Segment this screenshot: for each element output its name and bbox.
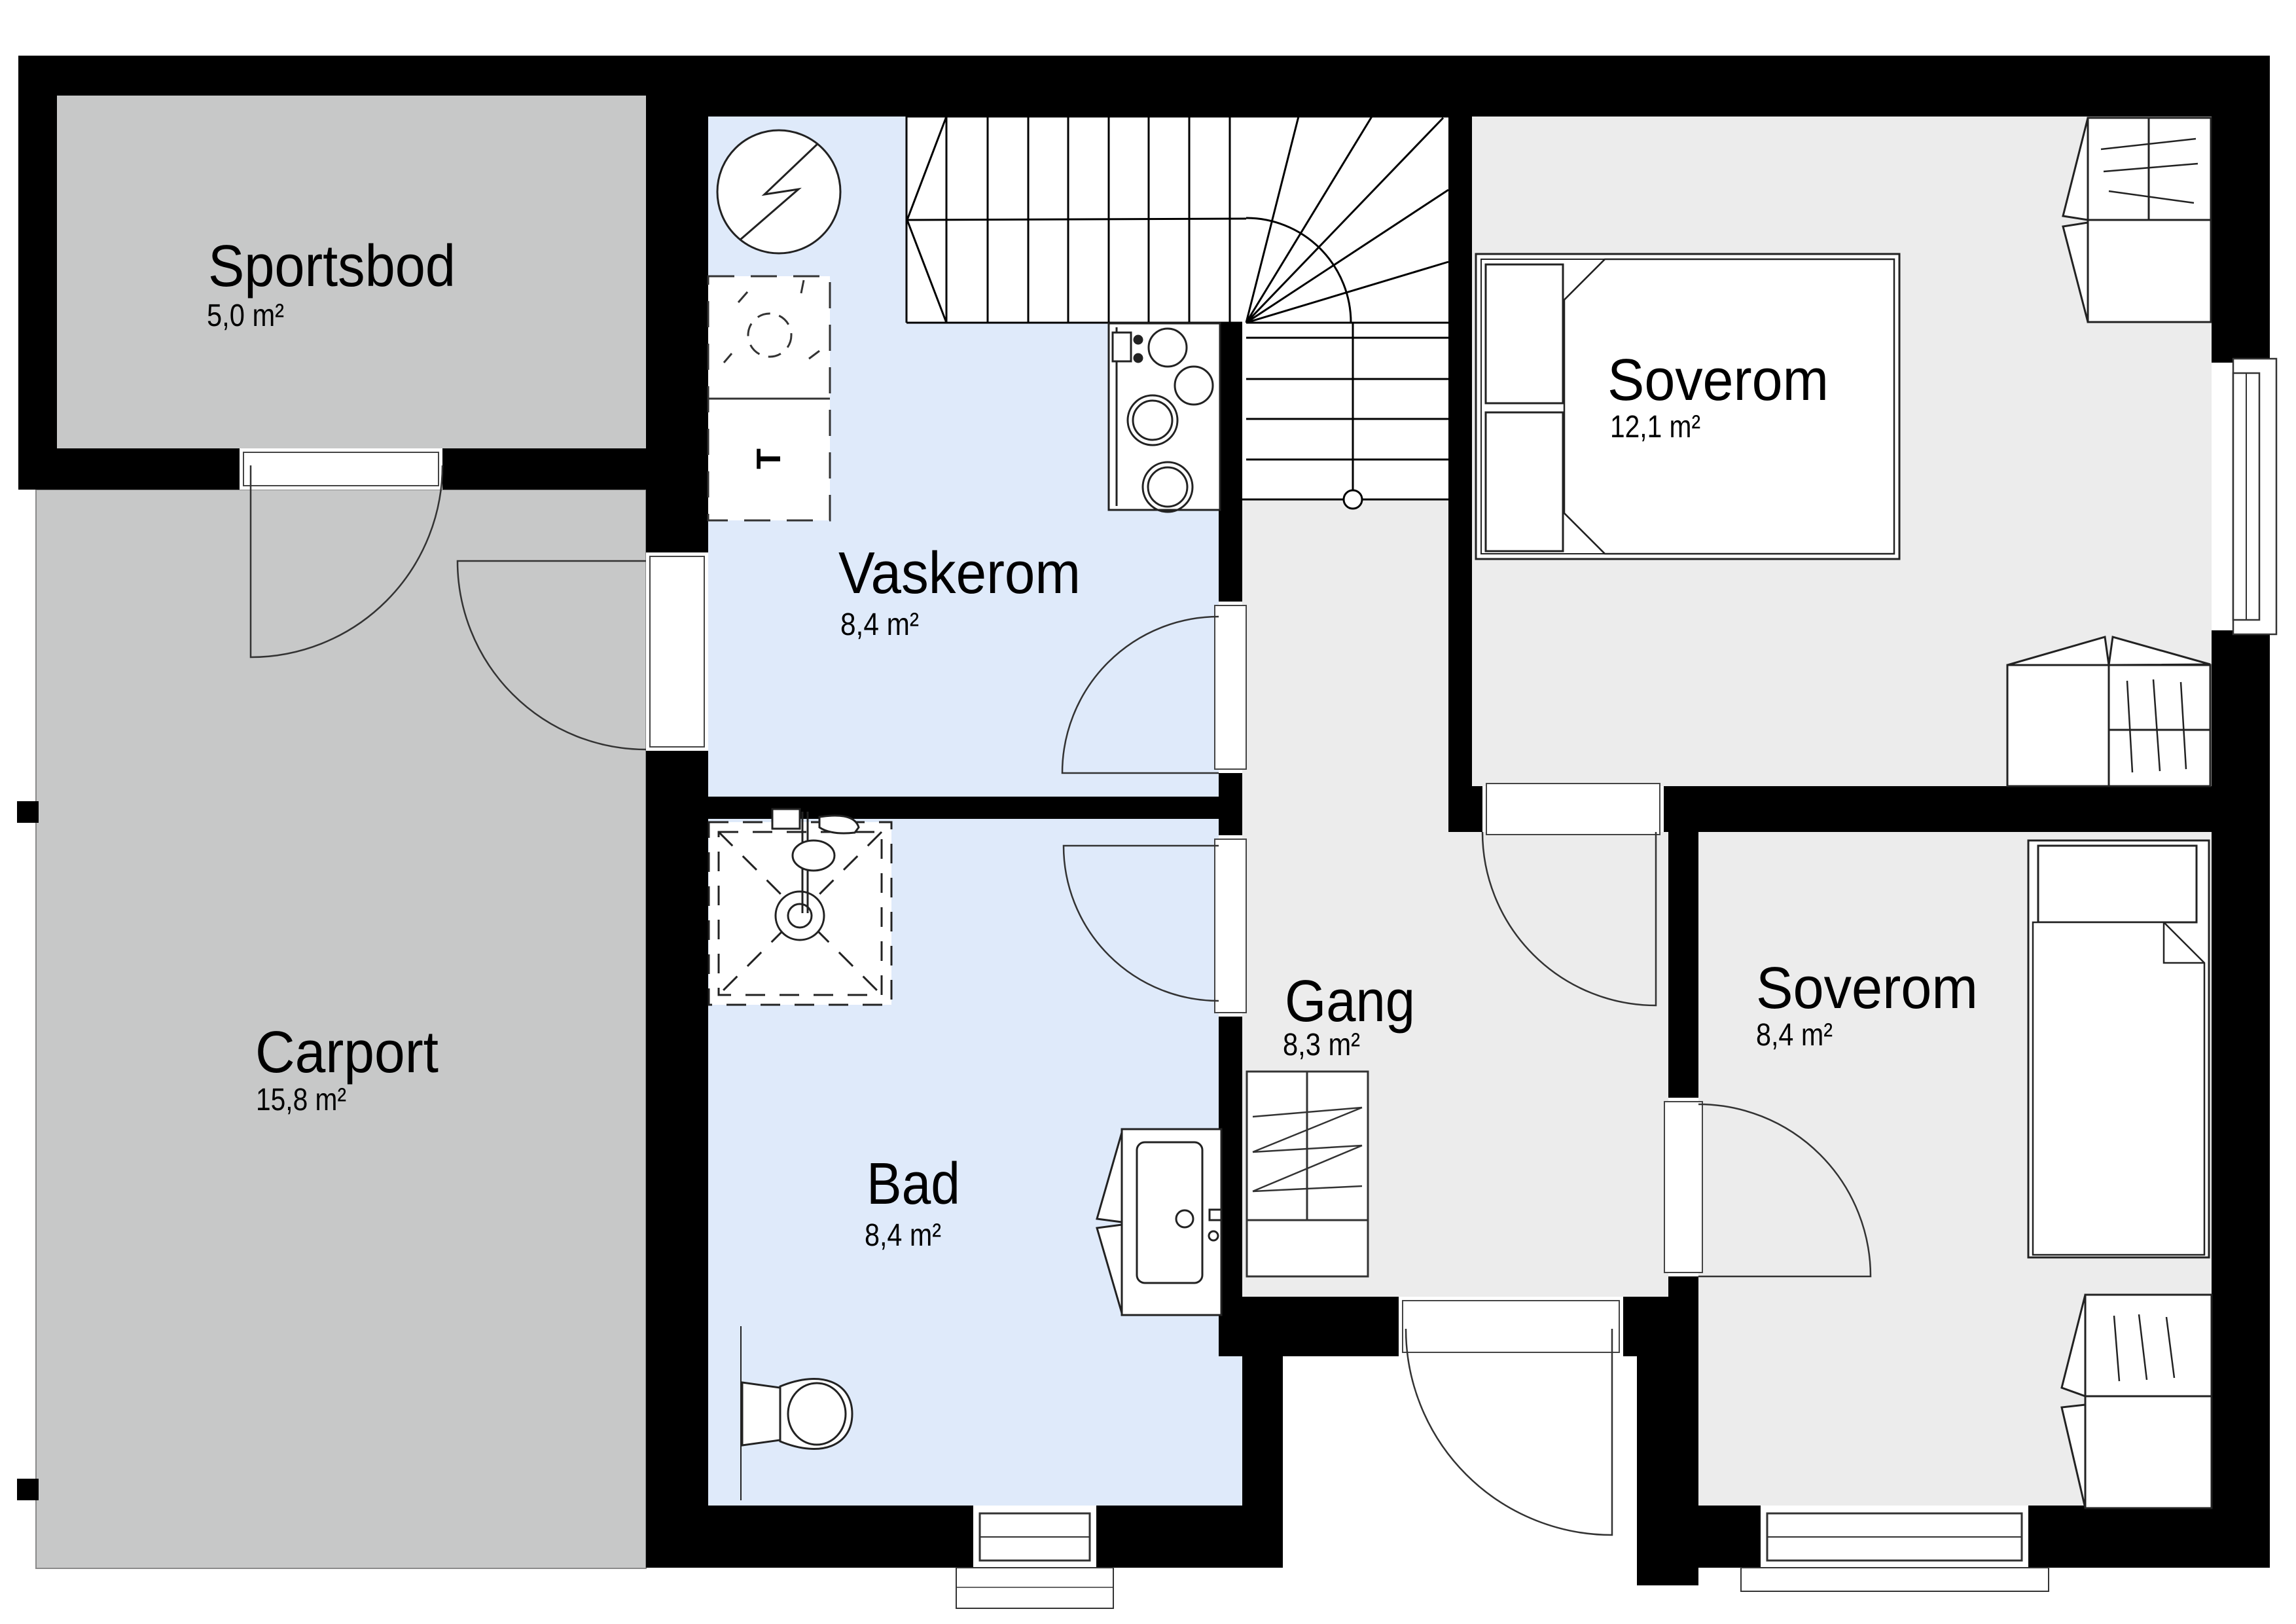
svg-text:Sportsbod: Sportsbod bbox=[208, 234, 456, 299]
svg-text:5,0 m²: 5,0 m² bbox=[207, 298, 284, 333]
svg-text:8,4 m²: 8,4 m² bbox=[1756, 1018, 1833, 1053]
svg-text:8,3 m²: 8,3 m² bbox=[1283, 1028, 1360, 1062]
svg-text:Soverom: Soverom bbox=[1607, 348, 1829, 413]
svg-text:T: T bbox=[750, 448, 788, 469]
svg-text:Bad: Bad bbox=[867, 1151, 960, 1217]
svg-text:8,4 m²: 8,4 m² bbox=[865, 1218, 941, 1253]
svg-text:Soverom: Soverom bbox=[1756, 956, 1978, 1021]
svg-text:Gang: Gang bbox=[1285, 969, 1415, 1034]
svg-text:15,8 m²: 15,8 m² bbox=[256, 1083, 346, 1117]
svg-text:Carport: Carport bbox=[255, 1020, 439, 1085]
svg-text:12,1 m²: 12,1 m² bbox=[1610, 410, 1700, 444]
svg-text:Vaskerom: Vaskerom bbox=[838, 541, 1081, 606]
svg-text:8,4 m²: 8,4 m² bbox=[840, 607, 919, 642]
